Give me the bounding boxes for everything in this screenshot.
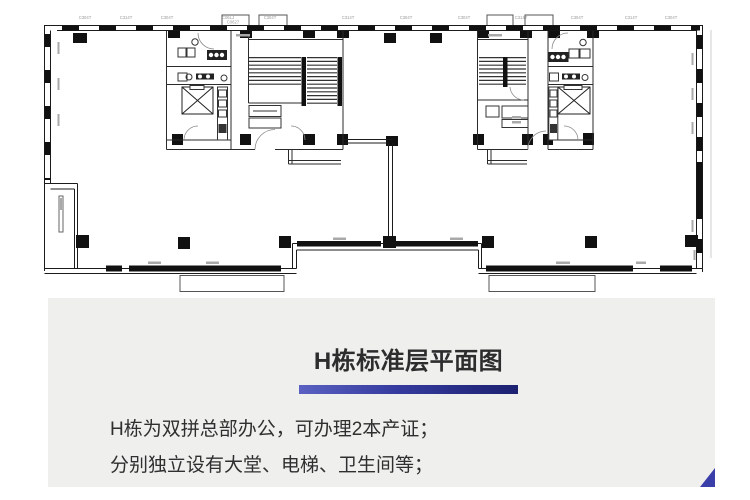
dimension-labels: C304T C314T C304T C06LJ C304T C314T C304… (79, 15, 678, 25)
info-panel: H栋标准层平面图 H栋为双拼总部办公，可办理2本产证； 分别独立设有大堂、电梯、… (48, 298, 715, 487)
svg-text:C304T: C304T (161, 15, 174, 20)
svg-text:C304T: C304T (665, 15, 678, 20)
svg-text:C314T: C314T (515, 15, 528, 20)
stairs-left (249, 57, 342, 128)
svg-text:C304T: C304T (79, 15, 92, 20)
bottom-curtain-walls (106, 241, 692, 272)
description-line-1: H栋为双拼总部办公，可办理2本产证； (110, 419, 715, 442)
mid-partition (343, 140, 393, 237)
stairs-right (486, 57, 528, 128)
toilets-right (549, 39, 591, 81)
title-accent-bar (299, 385, 518, 394)
dimension-marks (58, 34, 696, 264)
description-text: H栋为双拼总部办公，可办理2本产证； 分别独立设有大堂、电梯、卫生间等； (48, 419, 715, 478)
svg-text:C0627: C0627 (227, 20, 240, 25)
svg-text:C304T: C304T (458, 15, 471, 20)
section-title-block: H栋标准层平面图 (48, 298, 715, 394)
elevator-right (549, 86, 590, 141)
floor-plan-drawing: C304T C314T C304T C06LJ C304T C314T C304… (0, 0, 750, 298)
svg-text:C314T: C314T (625, 15, 638, 20)
svg-text:C314T: C314T (342, 15, 355, 20)
page: C304T C314T C304T C06LJ C304T C314T C304… (0, 0, 750, 500)
svg-text:C304T: C304T (264, 15, 277, 20)
description-line-2: 分别独立设有大堂、电梯、卫生间等； (110, 455, 715, 478)
svg-text:C304T: C304T (400, 15, 413, 20)
right-core (478, 31, 594, 164)
svg-text:C314T: C314T (120, 15, 133, 20)
svg-text:C304T: C304T (571, 15, 584, 20)
elevator-left (182, 86, 228, 141)
entrance-canopy-left (180, 276, 284, 292)
toilets-left (178, 39, 227, 81)
perimeter-columns (48, 28, 703, 265)
outer-walls (45, 26, 703, 274)
left-core (167, 31, 344, 164)
section-title: H栋标准层平面图 (314, 347, 503, 377)
entrance-canopy-right (489, 276, 595, 292)
